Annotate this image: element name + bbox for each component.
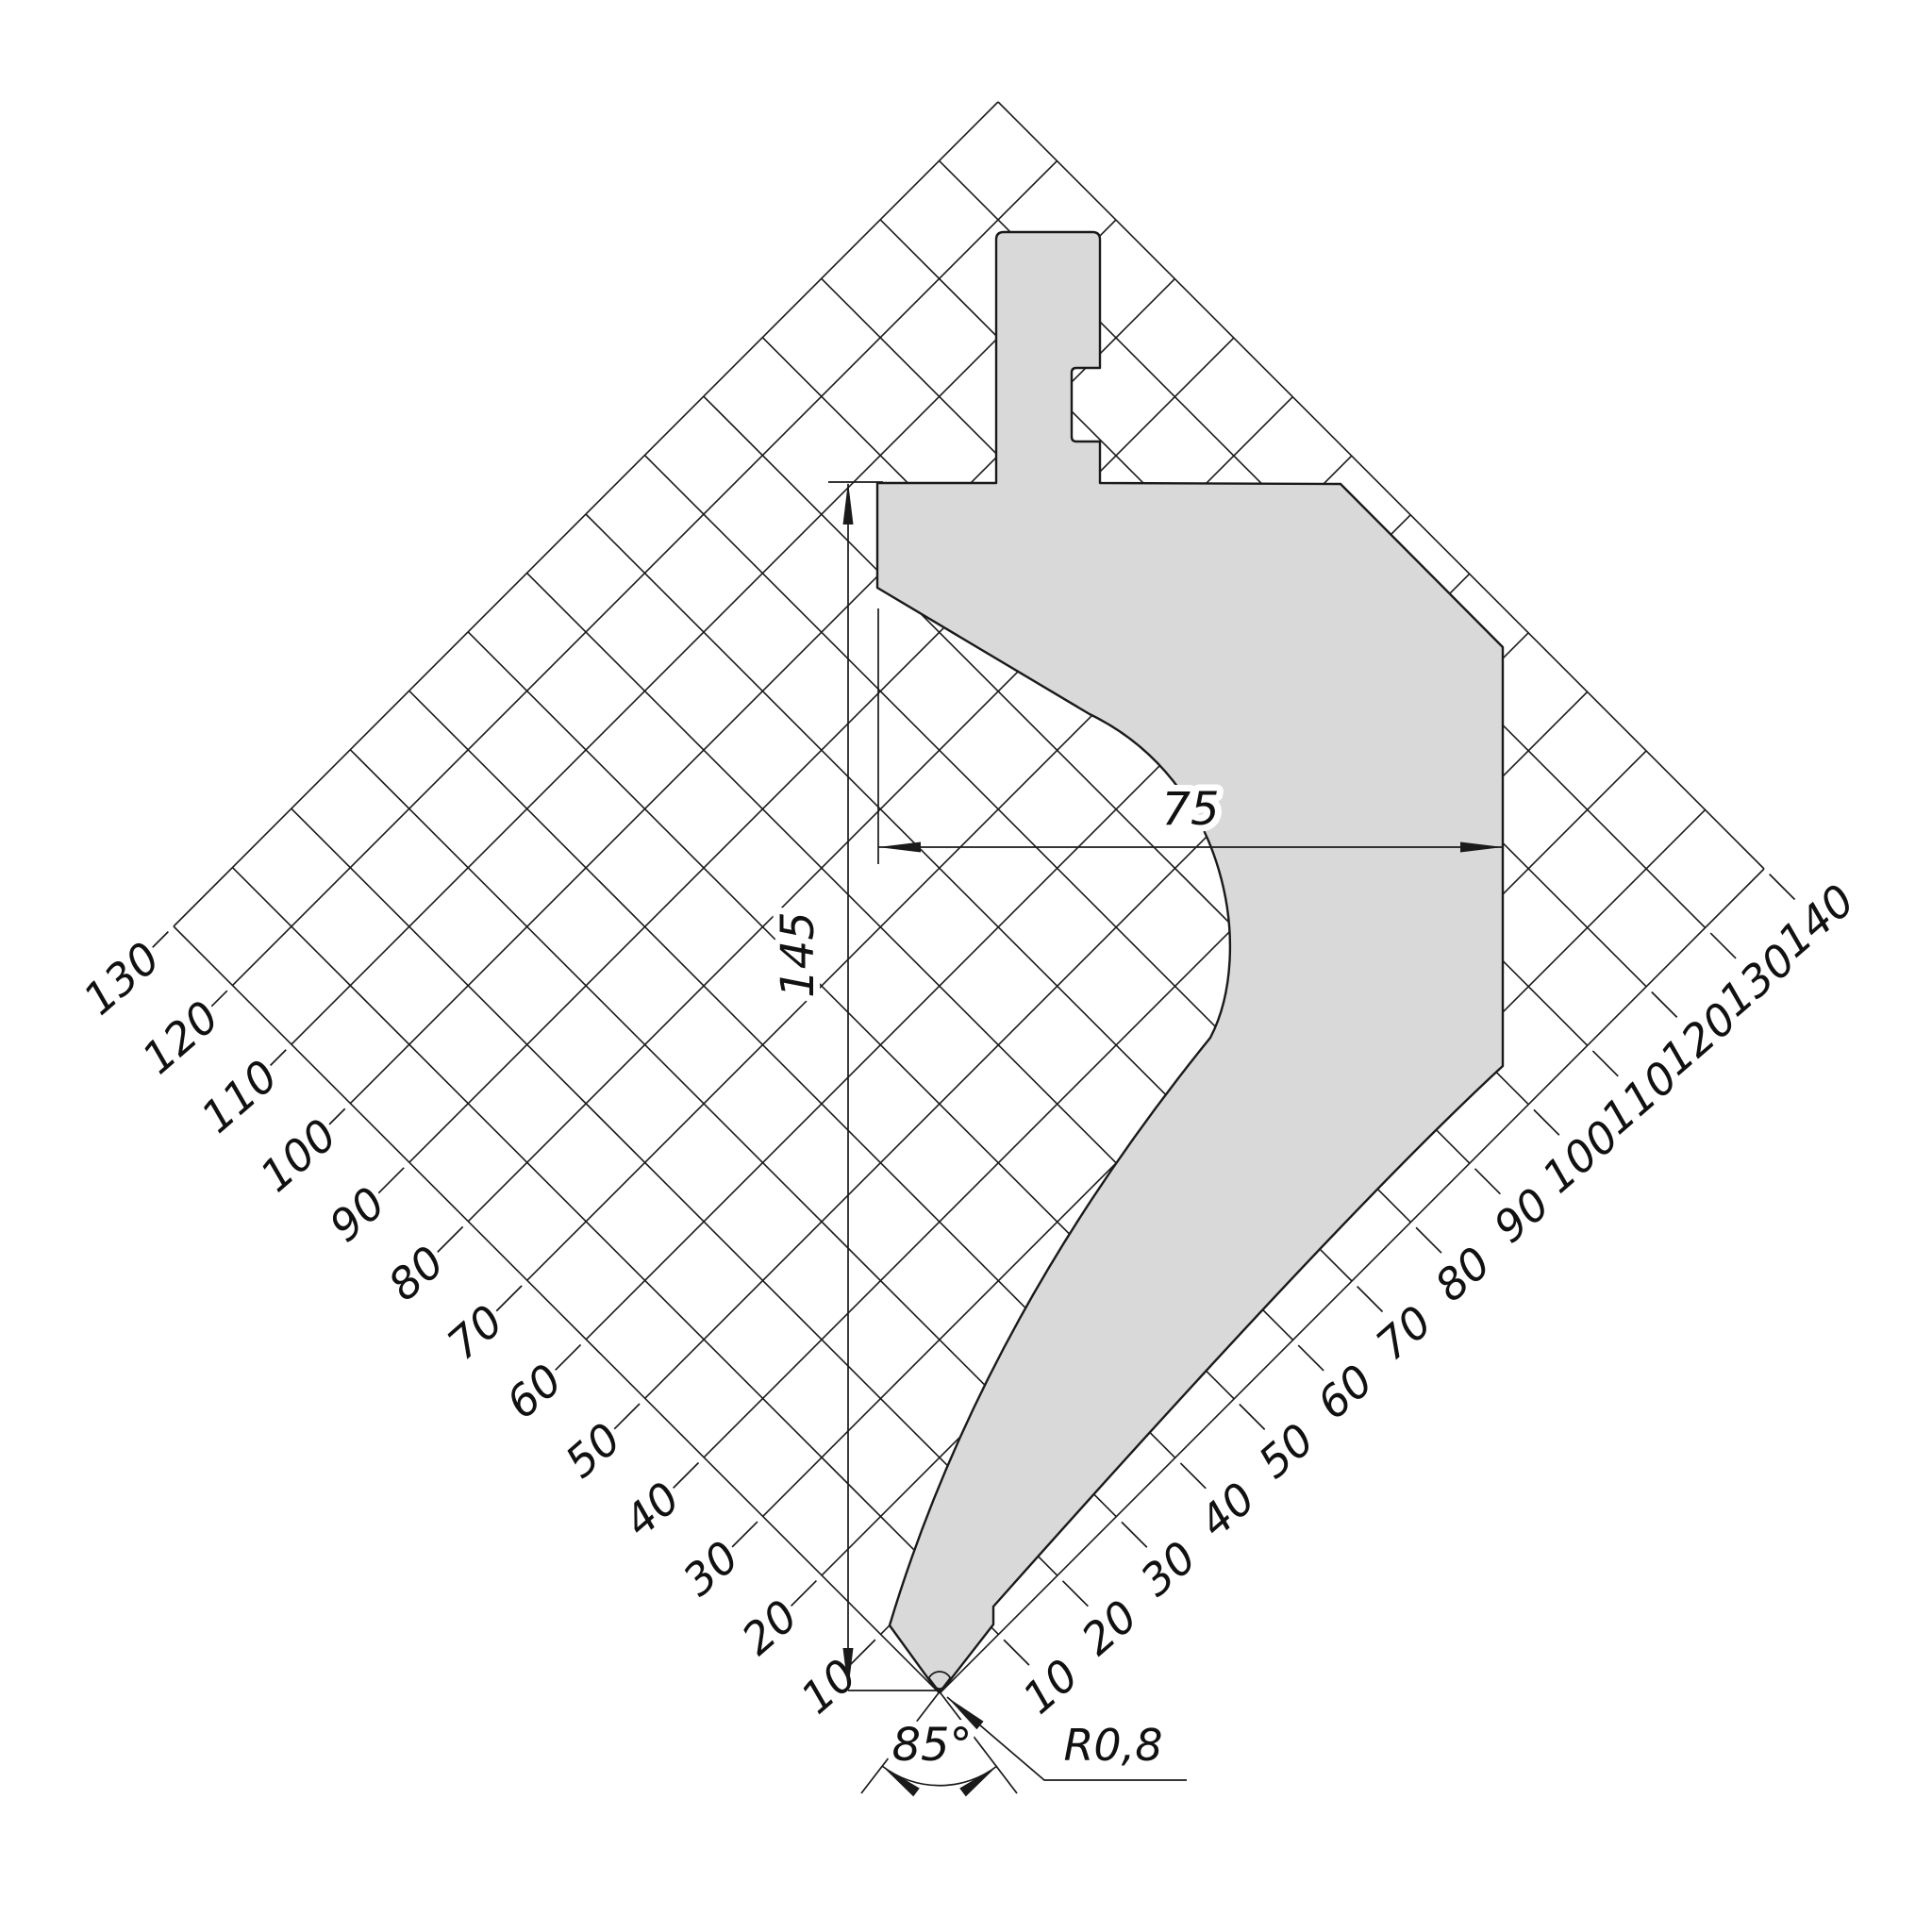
angle-label: 85° [891,1719,972,1772]
dim-height-label: 145 [772,911,824,998]
dim-width-label: 75 [1161,783,1219,836]
technical-drawing-canvas: 130120110100908070605040302010 102030405… [0,0,1932,1932]
radius-label: R0,8 [1063,1720,1162,1771]
